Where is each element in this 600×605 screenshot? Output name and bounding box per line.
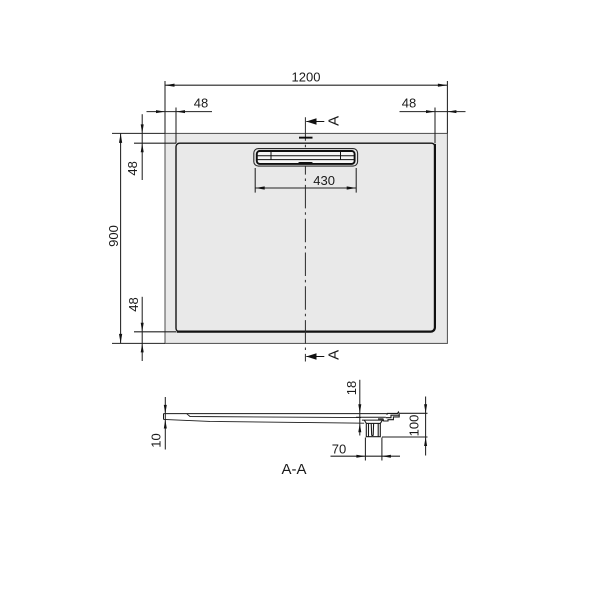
svg-text:48: 48 [126, 297, 141, 311]
svg-text:1200: 1200 [292, 70, 321, 85]
svg-text:430: 430 [313, 173, 335, 188]
svg-text:900: 900 [106, 225, 121, 247]
svg-text:A: A [326, 116, 343, 126]
svg-text:A: A [326, 350, 343, 360]
svg-text:48: 48 [402, 96, 416, 111]
svg-text:10: 10 [148, 433, 163, 447]
svg-text:18: 18 [344, 381, 359, 395]
svg-text:48: 48 [125, 161, 140, 175]
svg-text:48: 48 [194, 96, 208, 111]
svg-text:A-A: A-A [281, 461, 306, 478]
svg-text:70: 70 [332, 442, 346, 457]
svg-text:100: 100 [407, 415, 422, 437]
